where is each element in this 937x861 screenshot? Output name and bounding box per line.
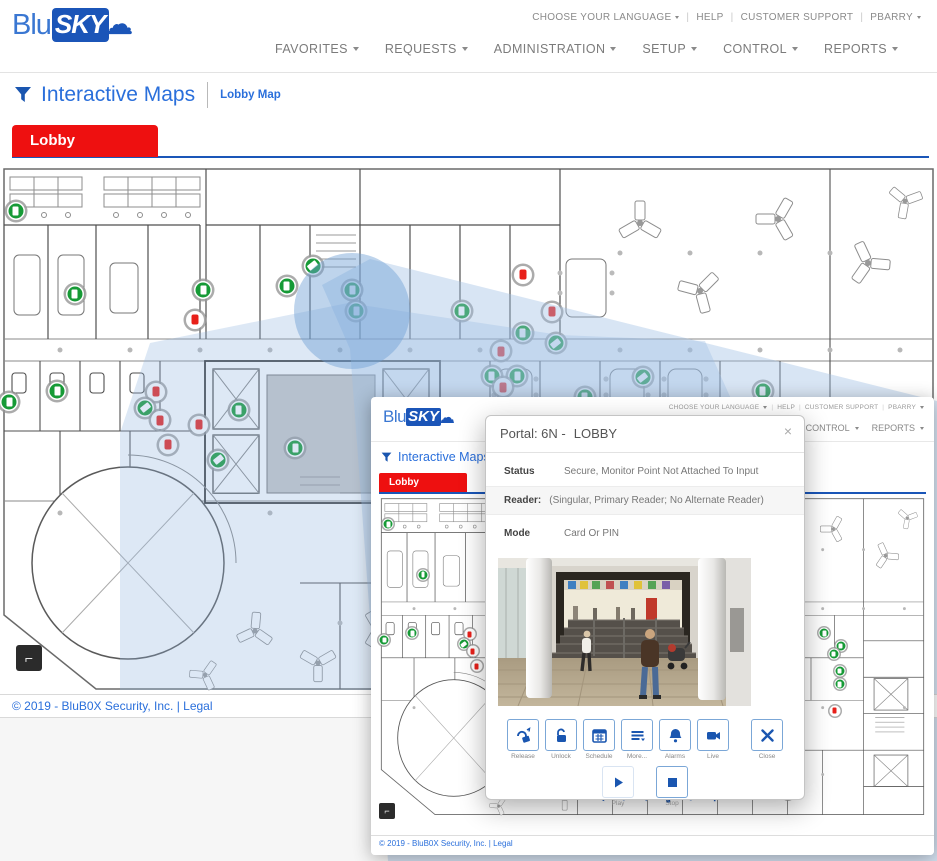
help-link[interactable]: HELP (777, 404, 795, 411)
divider: | (731, 12, 734, 23)
playback-controls: Play Stop (486, 766, 804, 807)
map-marker-door[interactable] (153, 413, 168, 428)
map-marker-camera[interactable] (635, 370, 650, 385)
language-menu[interactable]: CHOOSE YOUR LANGUAGE (532, 12, 679, 23)
map-marker-door[interactable] (2, 395, 17, 410)
customer-support-link[interactable]: CUSTOMER SUPPORT (741, 12, 854, 23)
map-marker-door[interactable] (835, 680, 844, 689)
map-marker-camera[interactable] (459, 639, 468, 648)
nav-setup[interactable]: SETUP (642, 42, 697, 56)
caret-down-icon (691, 47, 697, 51)
map-marker-door[interactable] (160, 437, 175, 452)
map-marker-door[interactable] (50, 383, 65, 398)
calendar-icon (591, 727, 608, 744)
mode-row: Mode Card Or PIN (486, 515, 804, 548)
mode-value: Card Or PIN (564, 528, 619, 539)
map-marker-door[interactable] (196, 283, 211, 298)
mode-label: Mode (504, 528, 564, 539)
map-marker-door[interactable] (187, 312, 202, 327)
close-icon[interactable]: × (784, 423, 792, 439)
caret-down-icon (920, 406, 924, 409)
mini-tab-lobby[interactable]: Lobby (379, 473, 467, 493)
map-marker-door[interactable] (384, 520, 393, 529)
logo-text-blu: Blu (383, 407, 406, 427)
map-marker-door[interactable] (279, 278, 294, 293)
map-marker-door[interactable] (510, 369, 525, 384)
nav-requests[interactable]: REQUESTS (385, 42, 468, 56)
map-marker-door[interactable] (231, 402, 246, 417)
caret-down-icon (917, 16, 921, 19)
cloud-icon: ☁ (438, 409, 455, 426)
logo-text-sky: SKY (52, 8, 109, 42)
lobby-camera-image (498, 558, 751, 706)
map-marker-door[interactable] (836, 642, 845, 651)
map-marker-door[interactable] (544, 304, 559, 319)
help-link[interactable]: HELP (696, 12, 723, 23)
caret-down-icon (920, 427, 924, 430)
map-marker-door[interactable] (345, 283, 360, 298)
release-icon (515, 727, 532, 744)
map-marker-door[interactable] (472, 662, 481, 671)
divider (207, 82, 208, 108)
map-marker-door[interactable] (465, 630, 474, 639)
portal-dialog-header: Portal: 6N -LOBBY × (486, 416, 804, 453)
map-marker-door[interactable] (454, 303, 469, 318)
status-value: Secure, Monitor Point Not Attached To In… (564, 466, 758, 477)
unlock-button[interactable]: Unlock (544, 719, 578, 760)
customer-support-link[interactable]: CUSTOMER SUPPORT (805, 404, 878, 411)
play-button[interactable]: Play (602, 766, 634, 807)
close-button[interactable]: Close (750, 719, 784, 760)
map-marker-door[interactable] (288, 441, 303, 456)
logo-text-blu: Blu (12, 9, 51, 42)
stop-button[interactable]: Stop (656, 766, 688, 807)
video-camera-icon (705, 727, 722, 744)
corner-arrow-icon: ⌐ (25, 650, 33, 666)
map-marker-door[interactable] (829, 650, 838, 659)
filter-funnel-icon (14, 86, 32, 104)
map-marker-door[interactable] (67, 286, 82, 301)
user-menu[interactable]: PBARRY (888, 404, 916, 411)
divider: | (860, 12, 863, 23)
copyright-text: © 2019 - BluB0X Security, Inc. | (12, 699, 180, 713)
nav-control[interactable]: CONTROL (723, 42, 798, 56)
page-title-row: Interactive Maps Lobby Map (14, 82, 281, 108)
portal-dialog-title: Portal: 6N -LOBBY (500, 426, 617, 441)
cloud-icon: ☁ (103, 10, 133, 40)
map-marker-door[interactable] (515, 326, 530, 341)
map-marker-door[interactable] (408, 629, 417, 638)
map-marker-door[interactable] (418, 570, 427, 579)
live-button[interactable]: Live (696, 719, 730, 760)
caret-down-icon (892, 47, 898, 51)
mini-utility-nav: CHOOSE YOUR LANGUAGE |HELP |CUSTOMER SUP… (669, 404, 924, 411)
nav-control[interactable]: CONTROL (806, 423, 859, 433)
release-button[interactable]: Release (506, 719, 540, 760)
map-marker-door[interactable] (349, 303, 364, 318)
logo-text-sky: SKY (406, 408, 441, 426)
tab-lobby[interactable]: Lobby (12, 125, 158, 157)
map-marker-door[interactable] (8, 204, 23, 219)
map-corner-tool[interactable]: ⌐ (16, 645, 42, 671)
play-icon (611, 775, 626, 790)
map-marker-door[interactable] (380, 636, 389, 645)
map-marker-camera[interactable] (138, 400, 153, 415)
map-marker-door[interactable] (496, 380, 511, 395)
user-menu[interactable]: PBARRY (870, 12, 921, 23)
reader-row: Reader: (Singular, Primary Reader; No Al… (486, 486, 804, 515)
camera-snapshot (498, 558, 751, 706)
breadcrumb: Lobby Map (220, 89, 281, 101)
alarms-button[interactable]: Alarms (658, 719, 692, 760)
divider: | (686, 12, 689, 23)
caret-down-icon (675, 16, 679, 19)
caret-down-icon (763, 406, 767, 409)
filter-funnel-icon (381, 452, 392, 463)
map-marker-door[interactable] (494, 344, 509, 359)
nav-reports[interactable]: REPORTS (824, 42, 898, 56)
map-marker-camera[interactable] (305, 258, 320, 273)
close-x-icon (759, 727, 776, 744)
caret-down-icon (792, 47, 798, 51)
map-marker-door[interactable] (830, 706, 839, 715)
portal-actions: Release Unlock Schedule More... Alarms L… (486, 719, 804, 760)
more-button[interactable]: More... (620, 719, 654, 760)
map-marker-door[interactable] (835, 667, 844, 676)
caret-down-icon (610, 47, 616, 51)
legal-link[interactable]: Legal (183, 699, 212, 713)
status-label: Status (504, 466, 564, 477)
map-marker-door[interactable] (468, 647, 477, 656)
page-title: Interactive Maps (41, 83, 195, 107)
schedule-button[interactable]: Schedule (582, 719, 616, 760)
unlock-icon (553, 727, 570, 744)
blusky-logo[interactable]: BluSKY☁ (12, 8, 133, 42)
caret-down-icon (353, 47, 359, 51)
language-menu[interactable]: CHOOSE YOUR LANGUAGE (669, 404, 760, 411)
mini-page-title-row: Interactive Maps (381, 450, 490, 464)
nav-administration[interactable]: ADMINISTRATION (494, 42, 617, 56)
nav-favorites[interactable]: FAVORITES (275, 42, 359, 56)
portal-dialog: Portal: 6N -LOBBY × Status Secure, Monit… (485, 415, 805, 800)
map-marker-door[interactable] (191, 417, 206, 432)
caret-down-icon (855, 427, 859, 430)
legal-link[interactable]: Legal (493, 839, 513, 848)
caret-down-icon (462, 47, 468, 51)
reader-value: (Singular, Primary Reader; No Alternate … (549, 495, 764, 506)
map-marker-camera[interactable] (211, 452, 226, 467)
map-marker-door[interactable] (820, 629, 829, 638)
copyright-text: © 2019 - BluB0X Security, Inc. | (379, 839, 491, 848)
stop-icon (665, 775, 680, 790)
reader-label: Reader: (504, 495, 541, 506)
status-row: Status Secure, Monitor Point Not Attache… (486, 453, 804, 486)
mini-blusky-logo[interactable]: BluSKY☁ (383, 407, 455, 427)
more-list-icon (629, 727, 646, 744)
map-marker-camera[interactable] (548, 336, 563, 351)
map-marker-door[interactable] (148, 384, 163, 399)
page-title: Interactive Maps (398, 450, 490, 464)
utility-nav: CHOOSE YOUR LANGUAGE | HELP | CUSTOMER S… (532, 12, 921, 23)
mini-page-footer: © 2019 - BluB0X Security, Inc. | Legal (371, 835, 934, 855)
main-nav: FAVORITES REQUESTS ADMINISTRATION SETUP … (275, 42, 898, 56)
app-header: BluSKY☁ CHOOSE YOUR LANGUAGE | HELP | CU… (0, 0, 937, 73)
bell-icon (667, 727, 684, 744)
map-marker-door[interactable] (515, 267, 530, 282)
nav-reports[interactable]: REPORTS (872, 423, 924, 433)
